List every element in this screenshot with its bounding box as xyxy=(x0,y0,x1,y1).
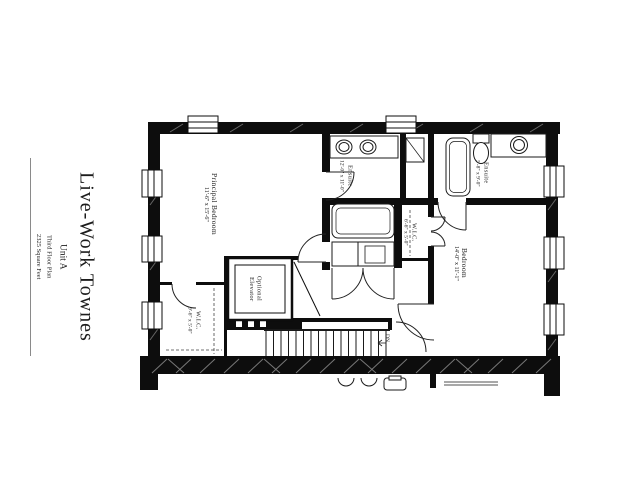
stairs-direction-label: DN xyxy=(384,334,390,356)
bathtub-core xyxy=(332,204,394,238)
door-principal xyxy=(298,234,326,262)
fixtures xyxy=(330,134,546,390)
room-label-wic-hall: W.I.C. 6'-6" x 5'-0" xyxy=(402,208,417,256)
door-hall-stairs xyxy=(396,322,426,352)
door-bedroom xyxy=(398,304,434,340)
window-left-3 xyxy=(142,302,162,329)
door-linen-double xyxy=(332,268,394,299)
stairs xyxy=(264,330,390,356)
window-right-2 xyxy=(544,237,564,269)
room-label-ensuite-secondary: Ensuite 5'-8" x 9'-0" xyxy=(474,150,489,196)
room-label-ensuite-primary: Ensuite 12'-0" x 11'-0" xyxy=(338,146,353,206)
vanity-single-sink xyxy=(491,134,546,157)
page-title: Live-Work Townes xyxy=(75,158,98,356)
room-label-principal-bedroom: Principal Bedroom 11'-6" x 15'-6" xyxy=(202,166,219,242)
laundry-cabinet xyxy=(332,242,394,266)
room-label-wic-principal: W.I.C. 9'-6" x 5'-0" xyxy=(186,294,201,346)
room-label-bedroom: Bedroom 14'-0" x 11'-1" xyxy=(452,232,469,294)
plan-name: Third Floor Plan xyxy=(44,158,52,356)
shower-stall xyxy=(406,138,424,162)
railing-posts xyxy=(236,321,266,327)
unit-label: Unit A xyxy=(56,158,67,356)
window-top-2 xyxy=(386,116,416,133)
window-right-1 xyxy=(544,166,564,197)
lower-unit-fixtures xyxy=(338,376,498,390)
bathtub-secondary xyxy=(446,138,470,196)
room-label-optional-elevator: Optional Elevator xyxy=(247,266,263,312)
window-right-3 xyxy=(544,304,564,335)
window-left-2 xyxy=(142,236,162,262)
elevator-shaft xyxy=(228,258,320,320)
floor-plan-page: Live-Work Townes Unit A Third Floor Plan… xyxy=(0,0,640,480)
door-wic-hall-double xyxy=(431,217,445,246)
window-top-1 xyxy=(188,116,218,133)
window-left-1 xyxy=(142,170,162,197)
square-footage: 2325 Square Feet xyxy=(34,158,42,356)
title-block: Live-Work Townes Unit A Third Floor Plan… xyxy=(30,158,98,356)
